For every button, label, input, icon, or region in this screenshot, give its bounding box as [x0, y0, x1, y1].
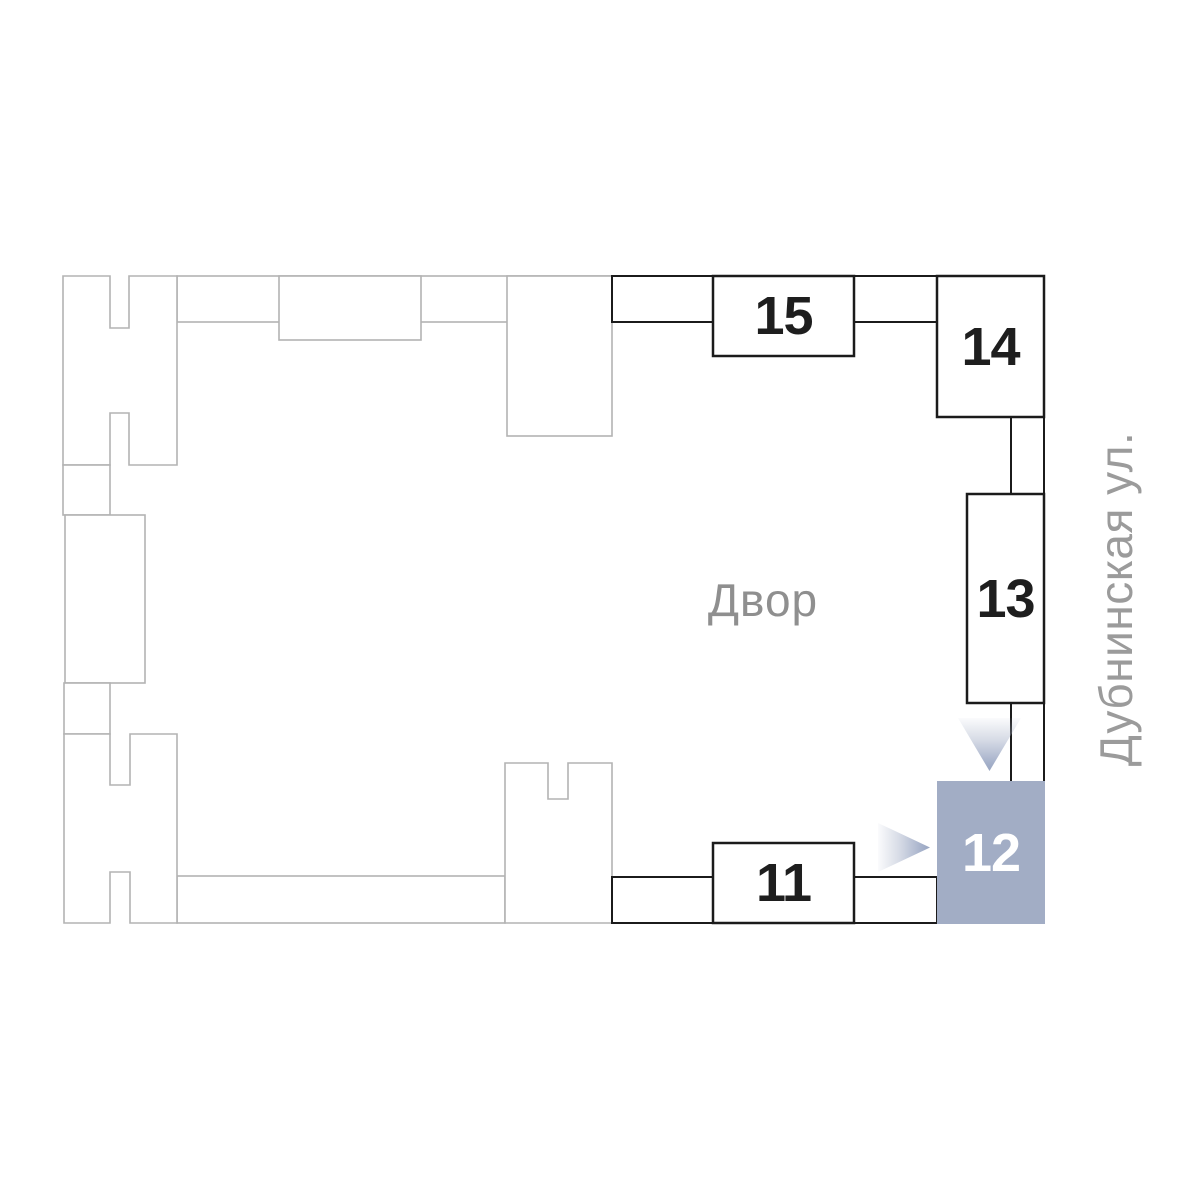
inactive-building-bottom-left [64, 734, 177, 923]
inactive-building-top-mid [279, 276, 421, 340]
site-plan: 15 14 13 12 11 Двор Дубнинская ул. [0, 0, 1200, 1200]
corridor-14-13 [1011, 417, 1044, 494]
building-14[interactable]: 14 [937, 276, 1044, 417]
inactive-building-top-left [63, 276, 177, 465]
courtyard-label: Двор [708, 573, 818, 627]
corridor-13-12 [1011, 703, 1044, 781]
street-label: Дубнинская ул. [1089, 432, 1143, 767]
inactive-buildings-group [63, 276, 612, 923]
building-15[interactable]: 15 [713, 276, 854, 356]
inactive-building-left-link-lower [64, 683, 110, 734]
inactive-building-top-tower [507, 276, 612, 436]
inactive-building-left-link-upper [63, 465, 110, 515]
inactive-bottom-wing [177, 876, 505, 923]
building-11[interactable]: 11 [713, 843, 854, 923]
inactive-building-left-mid [65, 515, 145, 683]
building-13[interactable]: 13 [967, 494, 1044, 703]
building-12-selected[interactable]: 12 [937, 781, 1045, 924]
inactive-building-bottom-tower [505, 763, 612, 923]
